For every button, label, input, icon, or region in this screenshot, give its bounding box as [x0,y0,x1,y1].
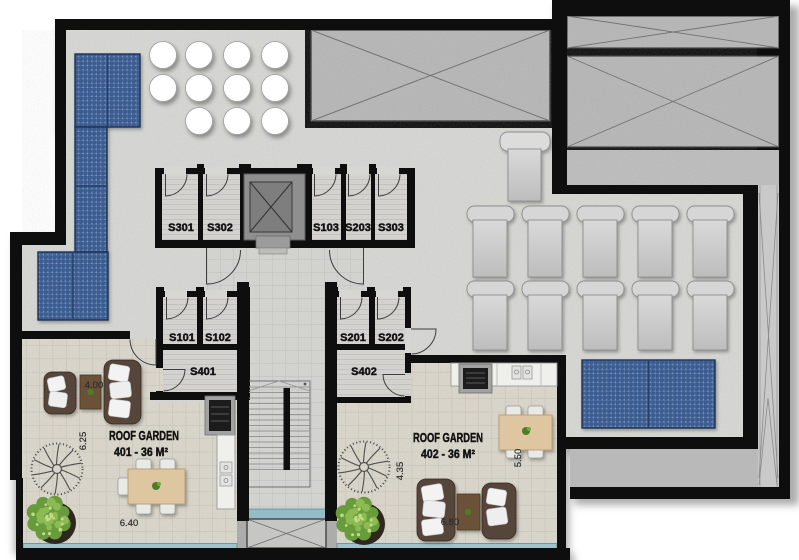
svg-text:S101: S101 [169,332,195,344]
svg-text:6.25: 6.25 [78,432,89,451]
svg-text:ROOF GARDEN: ROOF GARDEN [109,428,179,443]
svg-text:S302: S302 [207,222,233,234]
svg-text:S102: S102 [205,332,231,344]
svg-text:S401: S401 [190,366,216,378]
svg-text:S402: S402 [351,366,377,378]
svg-text:S201: S201 [340,332,366,344]
svg-text:S301: S301 [168,222,194,234]
svg-text:S103: S103 [313,222,339,234]
svg-text:401 - 36 M²: 401 - 36 M² [114,445,168,459]
svg-text:ROOF GARDEN: ROOF GARDEN [413,430,483,445]
svg-text:S303: S303 [378,222,404,234]
svg-text:4.35: 4.35 [395,462,406,481]
svg-text:6.40: 6.40 [120,518,139,529]
svg-text:5.50: 5.50 [513,449,524,468]
svg-text:4.00: 4.00 [85,380,104,391]
svg-text:S203: S203 [345,222,371,234]
svg-text:6.80: 6.80 [441,517,460,528]
svg-text:S202: S202 [378,332,404,344]
svg-text:402 - 36 M²: 402 - 36 M² [421,447,475,461]
